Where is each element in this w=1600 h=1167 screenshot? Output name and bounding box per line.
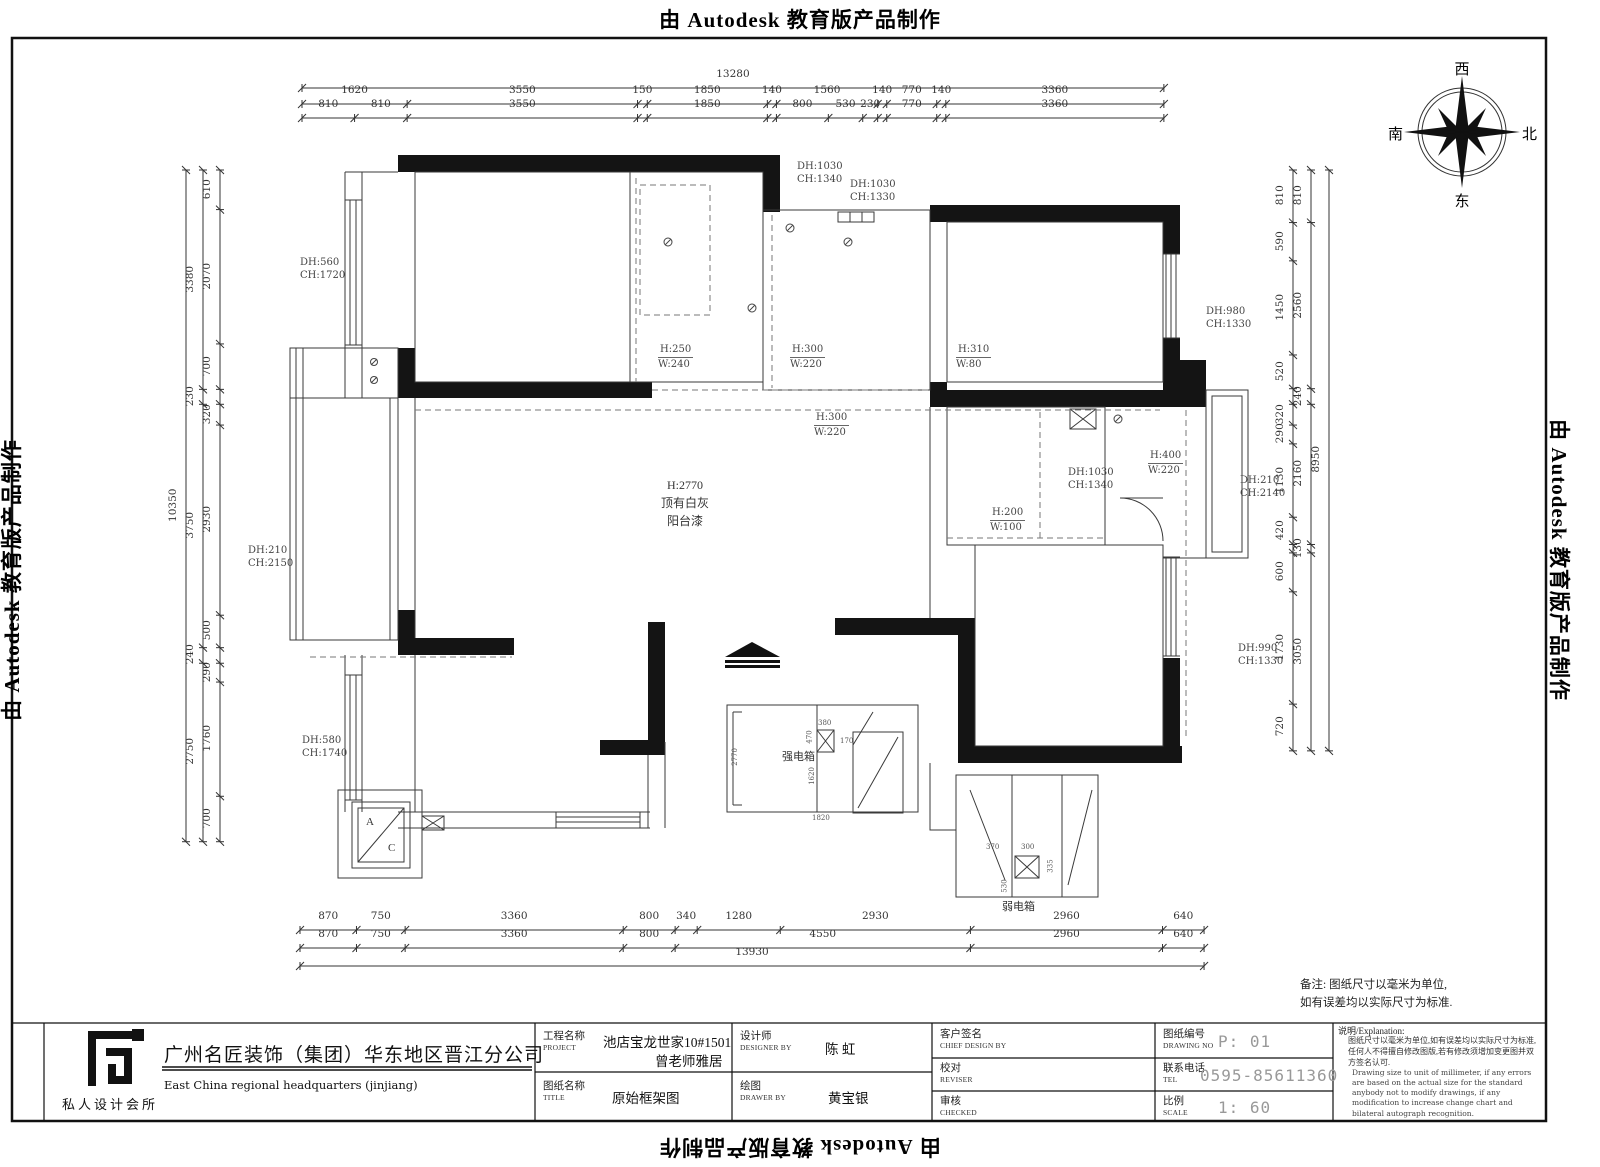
dimension-value: 800: [615, 929, 683, 940]
plot-stamp-right: 由 Autodesk 教育版产品制作: [1545, 419, 1575, 701]
dimension-value: 640: [1149, 911, 1217, 922]
plot-stamp-bottom: 由 Autodesk 教育版产品制作: [659, 1133, 941, 1163]
dimension-value: 590: [1275, 207, 1286, 275]
field-drawer-label: 绘图DRAWER BY: [740, 1080, 786, 1103]
field-drawer-value: 黄宝银: [828, 1087, 869, 1107]
dimension-value: 720: [1275, 693, 1286, 761]
dimension-value: 2930: [841, 911, 909, 922]
dimension-value: 1850: [673, 99, 741, 110]
sheet-remark: 备注: 图纸尺寸以毫米为单位, 如有误差均以实际尺寸为标准.: [1300, 976, 1452, 1013]
wall-label-w_balc: DH:210CH:2140: [1240, 474, 1285, 500]
dimension-value: 2960: [1032, 929, 1100, 940]
compass-north: 北: [1522, 123, 1537, 144]
dimension-value: 240: [1293, 362, 1304, 430]
detail-dim: 370: [986, 843, 999, 851]
company-name-en: East China regional headquarters (jinjia…: [164, 1078, 418, 1092]
field-tel-label: 联系电话TEL: [1163, 1062, 1205, 1085]
detail-dim: 1620: [808, 767, 816, 785]
field-project-value2: 曾老师雅居: [655, 1050, 723, 1070]
wall-label-b1: H:250W:240: [658, 343, 693, 371]
wall-label-w_top2: DH:1030CH:1330: [850, 178, 896, 204]
compass-west: 西: [1454, 58, 1469, 79]
field-drawingno-label: 图纸编号DRAWING NO: [1163, 1028, 1213, 1051]
dimension-value: 2560: [1293, 271, 1304, 339]
dimension-value: 750: [347, 929, 415, 940]
field-title-value: 原始框架图: [612, 1087, 680, 1107]
weak-electric-box-label: 弱电箱: [1002, 898, 1035, 914]
field-designer-label: 设计师DESIGNER BY: [740, 1030, 792, 1053]
dimension-value: 810: [1293, 162, 1304, 230]
dimension-value: 2960: [1032, 911, 1100, 922]
dimension-value: 700: [202, 784, 213, 852]
dimension-value: 1850: [673, 85, 741, 96]
dimension-value: 2750: [185, 718, 196, 786]
dimension-value: 290: [202, 638, 213, 706]
plot-stamp-top: 由 Autodesk 教育版产品制作: [659, 4, 941, 34]
field-scale-value: 1: 60: [1218, 1098, 1271, 1117]
wall-label-b2: H:300W:220: [790, 343, 825, 371]
wall-label-w_right_bot: DH:990CH:1330: [1238, 642, 1283, 668]
field-drawingno-value: P: 01: [1218, 1032, 1271, 1051]
dimension-value: 1280: [705, 911, 773, 922]
dimension-value: 130: [1293, 514, 1304, 582]
dimension-value: 770: [878, 99, 946, 110]
dimension-value: 13930: [718, 947, 786, 958]
field-reviser-label: 校对REVISER: [940, 1062, 973, 1085]
wall-label-w_mid: DH:1030CH:1340: [1068, 466, 1114, 492]
dimension-value: 3050: [1293, 617, 1304, 685]
dimension-value: 1450: [1275, 273, 1286, 341]
dimension-value: 3360: [480, 911, 548, 922]
wall-label-b5: H:400W:220: [1148, 449, 1183, 477]
dimension-value: 8950: [1311, 426, 1322, 494]
dimension-value: 600: [1275, 538, 1286, 606]
dimension-value: 3750: [185, 491, 196, 559]
room-outlines: [290, 172, 1248, 897]
room-height-label: H:2770 顶有白灰 阳台漆: [661, 476, 709, 530]
compass-east: 东: [1454, 190, 1469, 211]
field-designer-value: 陈 虹: [825, 1038, 855, 1058]
company-logo: [92, 1029, 144, 1086]
detail-dim: 2770: [731, 748, 739, 766]
dimension-value: 10350: [168, 471, 179, 539]
field-title-label: 图纸名称TITLE: [543, 1080, 585, 1103]
ac-unit-letter-a: A: [366, 816, 374, 828]
detail-dim: 470: [806, 730, 814, 743]
dimension-value: 320: [202, 380, 213, 448]
dimension-value: 3360: [1021, 85, 1089, 96]
detail-dim: 530: [1001, 879, 1009, 892]
ac-unit-letter-c: C: [388, 842, 395, 854]
wall-label-w_left_mid: DH:210CH:2150: [248, 544, 293, 570]
wall-label-w_left_bot: DH:580CH:1740: [302, 734, 347, 760]
dimension-value: 3360: [480, 929, 548, 940]
field-client-label: 客户签名CHIEF DESIGN BY: [940, 1028, 1006, 1051]
wall-label-w_top1: DH:1030CH:1340: [797, 160, 843, 186]
dimension-value: 610: [202, 155, 213, 223]
dimension-value: 13280: [699, 69, 767, 80]
wall-label-b3: H:310W:80: [956, 343, 991, 371]
field-scale-label: 比例SCALE: [1163, 1095, 1188, 1118]
detail-dim: 1820: [812, 814, 830, 822]
dimension-value: 750: [347, 911, 415, 922]
dimension-value: 240: [185, 621, 196, 689]
dimension-value: 3360: [1021, 99, 1089, 110]
floorplan-sheet: 由 Autodesk 教育版产品制作 由 Autodesk 教育版产品制作 由 …: [0, 0, 1600, 1167]
dimension-value: 230: [185, 362, 196, 430]
field-checker-label: 审核CHECKED: [940, 1095, 977, 1118]
detail-dim: 335: [1047, 859, 1055, 872]
wall-label-b4: H:300W:220: [814, 411, 849, 439]
company-name-cn: 广州名匠装饰（集团）华东地区晋江分公司: [164, 1040, 544, 1067]
dimension-value: 150: [608, 85, 676, 96]
dimension-value: 3380: [185, 245, 196, 313]
dimension-value: 3550: [488, 85, 556, 96]
field-project-label: 工程名称PROJECT: [543, 1030, 585, 1053]
dimension-value: 140: [907, 85, 975, 96]
detail-dim: 380: [818, 719, 831, 727]
field-explanation-en: Drawing size to unit of millimeter, if a…: [1352, 1068, 1540, 1119]
detail-dim: 170: [840, 737, 853, 745]
compass-south: 南: [1388, 123, 1403, 144]
wall-label-w_right_top: DH:980CH:1330: [1206, 305, 1251, 331]
wall-label-b6: H:200W:100: [990, 506, 1025, 534]
plot-stamp-left: 由 Autodesk 教育版产品制作: [0, 439, 26, 721]
dimension-value: 1620: [321, 85, 389, 96]
compass-icon: [1404, 76, 1520, 188]
walls: [398, 155, 1206, 763]
dimension-value: 2160: [1293, 440, 1304, 508]
dimension-value: 3550: [488, 99, 556, 110]
dimension-value: 2930: [202, 485, 213, 553]
dimension-value: 2070: [202, 242, 213, 310]
strong-electric-box-label: 强电箱: [782, 748, 815, 764]
logo-caption: 私人设计会所: [62, 1094, 158, 1113]
dimension-value: 640: [1149, 929, 1217, 940]
field-explanation-cn: 图纸尺寸以毫米为单位,如有误差均以实际尺寸为标准,任何人不得擅自修改图版,若有修…: [1348, 1036, 1540, 1068]
dimension-value: 4550: [789, 929, 857, 940]
field-tel-value: 0595-85611360: [1200, 1066, 1338, 1085]
dimension-value: 1760: [202, 704, 213, 772]
entry-marker: [725, 642, 780, 668]
dimension-value: 810: [347, 99, 415, 110]
detail-dim: 300: [1021, 843, 1034, 851]
wall-label-w_left_top: DH:560CH:1720: [300, 256, 345, 282]
field-project-value: 池店宝龙世家10#1501: [603, 1031, 731, 1051]
